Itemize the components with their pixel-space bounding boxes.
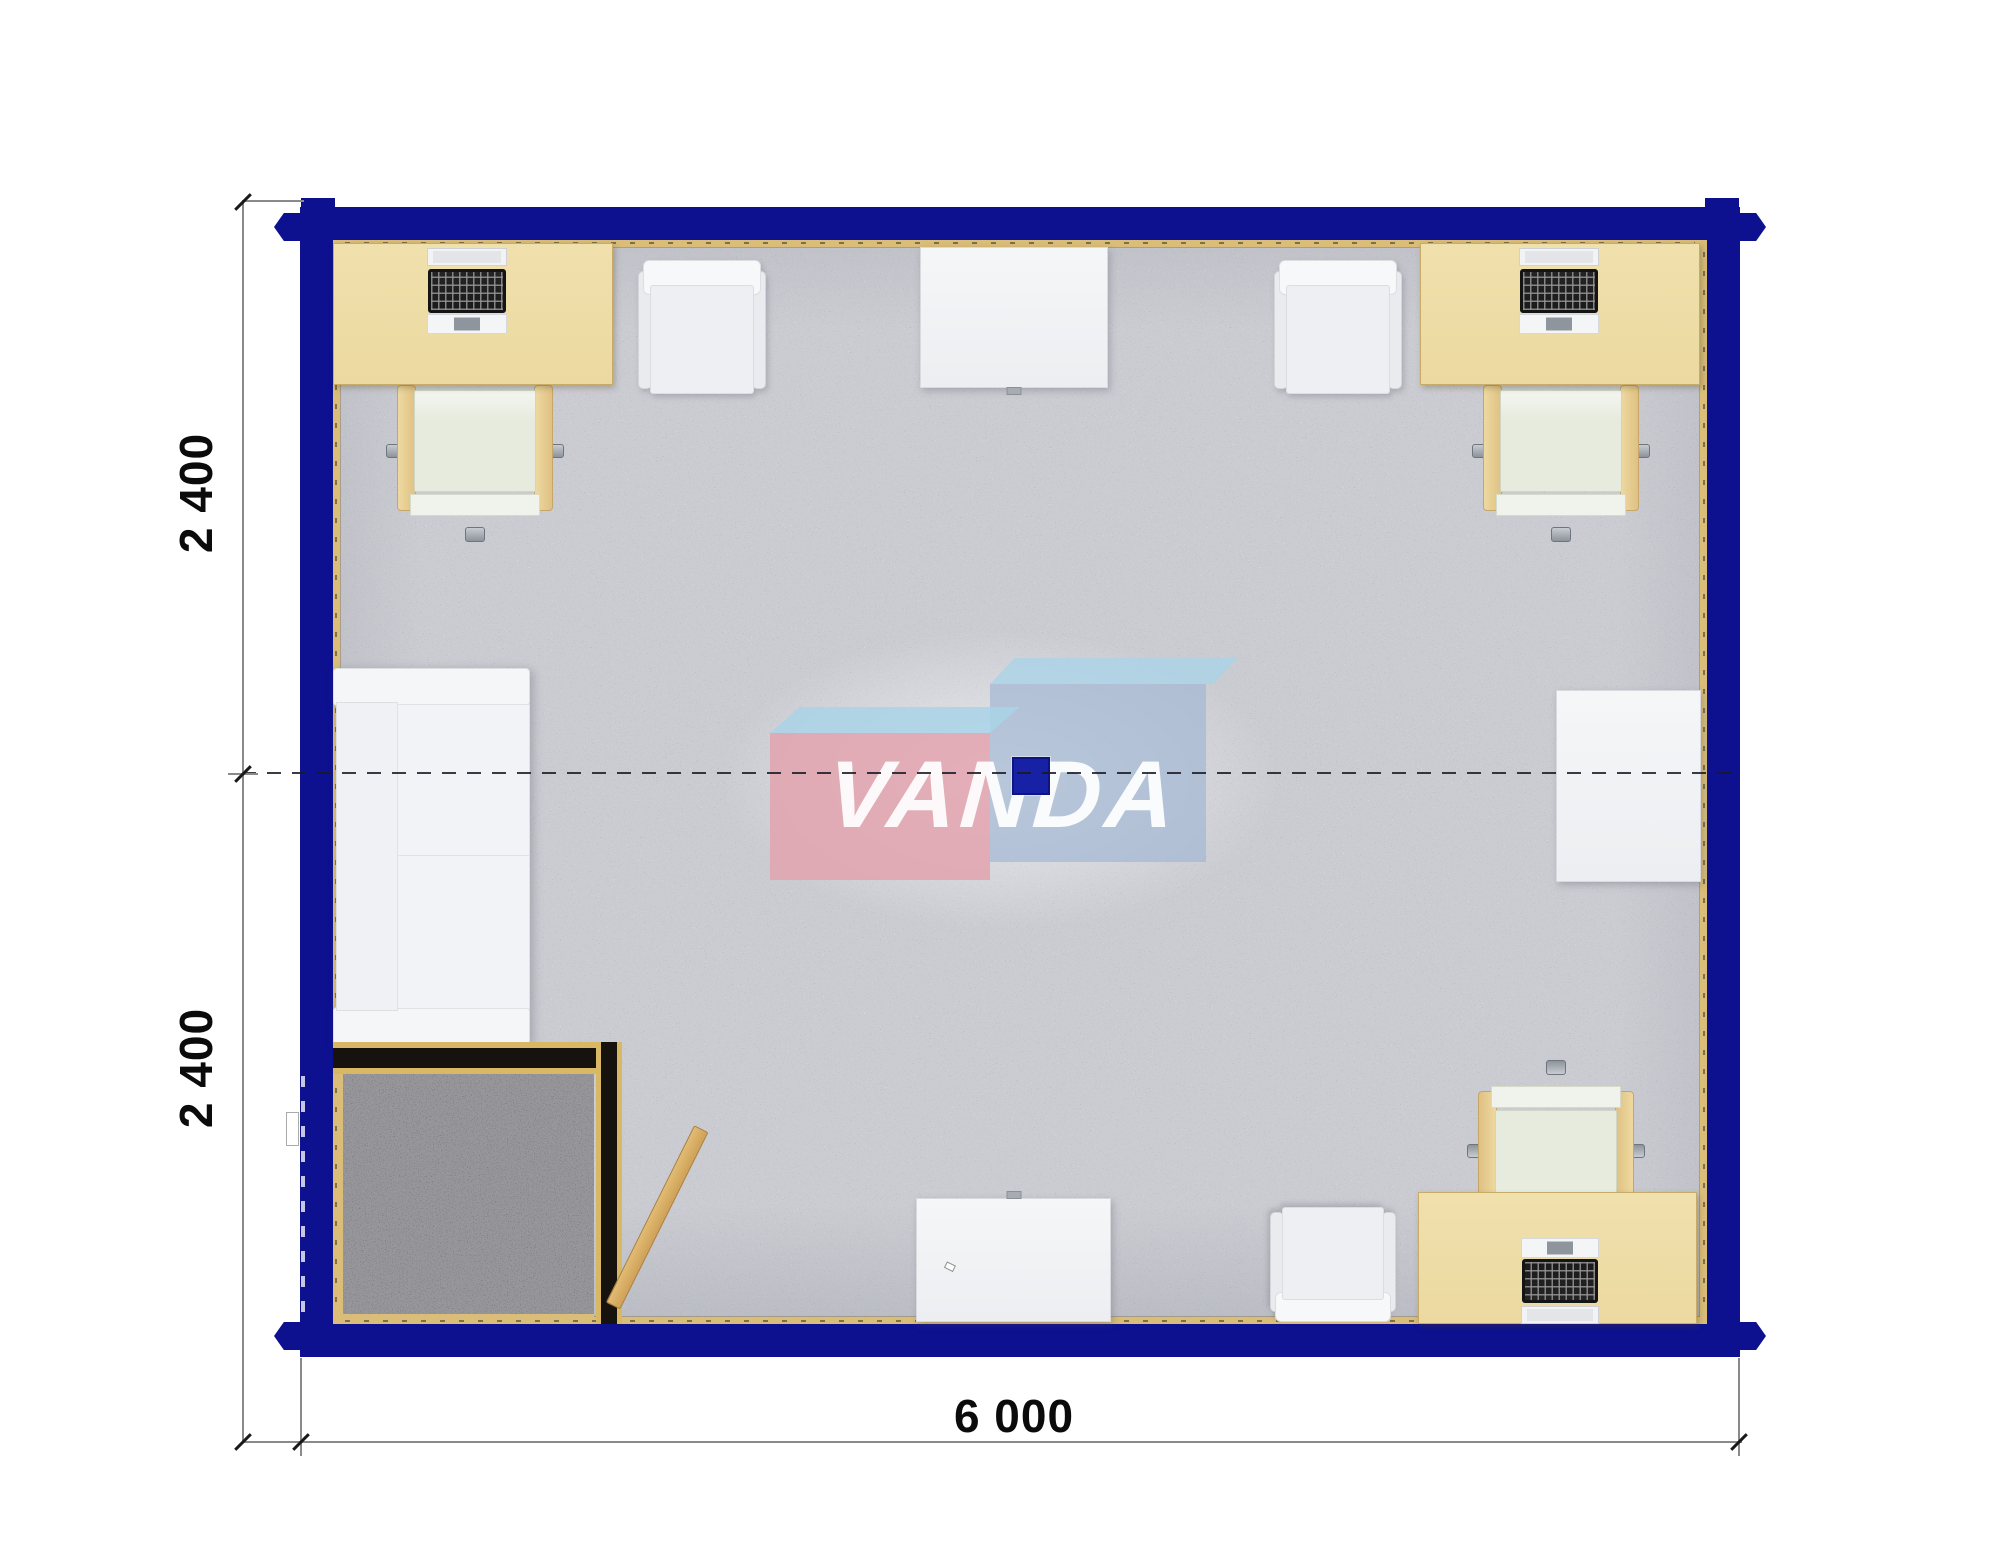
- roof-rib-top-right: [1705, 198, 1739, 208]
- visitor-chair-bottom: [1270, 1202, 1396, 1322]
- laptop-screen-lid: [427, 248, 506, 266]
- laptop-palmrest: [1519, 314, 1598, 334]
- sofa-backrest: [336, 702, 398, 1011]
- laptop-top-left: [424, 248, 510, 334]
- centerline: [242, 772, 1742, 774]
- chair-armrest: [1620, 385, 1639, 511]
- sofa-seat-cushion: [397, 855, 530, 1009]
- chair-armrest: [534, 385, 553, 511]
- partition-core: [601, 1042, 617, 1324]
- roof-rib-top-left: [301, 198, 335, 208]
- dim-label-bottom: 6 000: [954, 1389, 1074, 1443]
- chair-seat: [1491, 1086, 1621, 1108]
- corner-casting-bottom-right: [1740, 1322, 1766, 1350]
- entry-partition-horizontal: [333, 1042, 622, 1074]
- entry-carpet-texture: [343, 1074, 594, 1314]
- laptop-top-right: [1516, 248, 1602, 334]
- exterior-door-seam: [301, 1076, 305, 1322]
- table-right: [1556, 690, 1701, 882]
- chair-backrest-cushion: [414, 390, 536, 492]
- laptop-keyboard: [1520, 269, 1597, 314]
- ceiling-lamp: [1012, 757, 1050, 795]
- laptop-screen-lid: [1519, 248, 1598, 266]
- chair-seat: [410, 494, 540, 516]
- extension-line-top-left: [242, 200, 304, 202]
- partition-core: [333, 1048, 622, 1068]
- armchair-seat: [1286, 285, 1390, 394]
- sofa: [333, 668, 530, 1045]
- laptop-touchpad: [454, 318, 480, 331]
- furniture-layer: VANDA: [333, 240, 1707, 1324]
- armchair-seat: [650, 285, 754, 394]
- corner-casting-bottom-left: [274, 1322, 300, 1350]
- office-chair-top-left: [397, 382, 553, 532]
- laptop-palmrest: [1521, 1238, 1598, 1258]
- laptop-screen-lid: [1521, 1306, 1598, 1324]
- sofa-seat-cushion: [397, 704, 530, 858]
- table-top: [920, 247, 1108, 388]
- logo-blue-box-top: [990, 658, 1238, 684]
- corner-casting-top-left: [274, 213, 300, 241]
- dim-label-left-bottom: 2 400: [169, 1008, 223, 1128]
- interior-floor: VANDA: [333, 240, 1707, 1324]
- sofa-armrest: [333, 668, 530, 706]
- table-leg-tab: [1007, 387, 1022, 395]
- sofa-armrest: [333, 1007, 530, 1045]
- laptop-palmrest: [427, 314, 506, 334]
- visitor-chair-top-left: [638, 260, 766, 400]
- caster-wheel: [1551, 527, 1571, 542]
- table-leg-tab: [1006, 1191, 1021, 1199]
- corner-casting-top-right: [1740, 213, 1766, 241]
- exterior-door-handle: [286, 1112, 299, 1146]
- floor-plan-canvas: VANDA 2 400 2 400 6 000: [0, 0, 2000, 1561]
- chair-backrest-cushion: [1500, 390, 1622, 492]
- watermark-text: VANDA: [756, 700, 1249, 890]
- chair-seat: [1496, 494, 1626, 516]
- laptop-touchpad: [1546, 318, 1572, 331]
- armchair-seat: [1282, 1207, 1384, 1301]
- dimension-line-left: [242, 201, 244, 1442]
- table-bottom: [916, 1198, 1111, 1322]
- dim-label-left-top: 2 400: [169, 433, 223, 553]
- caster-wheel: [465, 527, 485, 542]
- laptop-keyboard: [428, 269, 505, 314]
- office-chair-top-right: [1483, 382, 1639, 532]
- visitor-chair-top-right: [1274, 260, 1402, 400]
- laptop-bottom-right: [1518, 1238, 1602, 1324]
- laptop-touchpad: [1547, 1241, 1573, 1254]
- caster-wheel: [1546, 1060, 1566, 1075]
- laptop-keyboard: [1522, 1259, 1598, 1304]
- entry-floor: [338, 1074, 594, 1320]
